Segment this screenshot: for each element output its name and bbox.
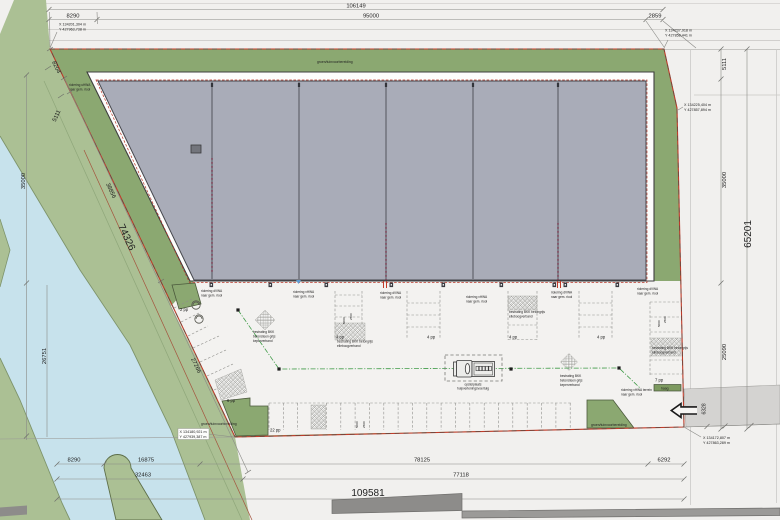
svg-text:riolering uHWA: riolering uHWA	[69, 83, 91, 87]
svg-text:groen/tuinvoorbereiding: groen/tuinvoorbereiding	[317, 60, 353, 64]
svg-text:Y 427863,289 m: Y 427863,289 m	[703, 441, 730, 445]
svg-text:betonsteen grijs: betonsteen grijs	[253, 334, 276, 338]
svg-text:6328: 6328	[702, 403, 708, 414]
svg-text:X 134225,404 m: X 134225,404 m	[684, 103, 711, 107]
svg-text:Y 427857,894 m: Y 427857,894 m	[684, 108, 711, 112]
svg-text:Y 427939,387 m: Y 427939,387 m	[180, 435, 207, 439]
svg-text:5000: 5000	[355, 421, 359, 428]
svg-text:naar gem. riool: naar gem. riool	[293, 294, 315, 298]
svg-text:bestrating BKK betongrijs: bestrating BKK betongrijs	[337, 340, 373, 344]
svg-text:35000: 35000	[722, 172, 728, 188]
svg-text:4 pp: 4 pp	[509, 335, 518, 340]
svg-text:hulpverleningsvoertuig: hulpverleningsvoertuig	[457, 387, 489, 391]
svg-text:32463: 32463	[135, 473, 151, 479]
svg-text:X 134237,918 m: X 134237,918 m	[665, 29, 692, 33]
svg-text:6 pp: 6 pp	[227, 398, 236, 403]
svg-text:riolering dVWA: riolering dVWA	[380, 291, 402, 295]
svg-text:5111: 5111	[722, 58, 728, 70]
svg-text:groen/tuinvoorbereiding: groen/tuinvoorbereiding	[591, 423, 627, 427]
svg-text:bestrating BKK: bestrating BKK	[560, 374, 582, 378]
svg-text:naar gem. riool: naar gem. riool	[551, 295, 573, 299]
svg-text:5000: 5000	[342, 317, 346, 324]
svg-text:8290: 8290	[68, 458, 81, 464]
svg-text:keperverband: keperverband	[253, 339, 273, 343]
svg-text:6292: 6292	[658, 458, 671, 464]
svg-text:8290: 8290	[67, 14, 80, 20]
svg-text:4 pp: 4 pp	[597, 335, 606, 340]
svg-text:26751: 26751	[42, 348, 48, 364]
svg-text:naar gem. riool: naar gem. riool	[637, 291, 659, 295]
svg-text:2500: 2500	[362, 421, 366, 428]
svg-text:elleboogverband: elleboogverband	[337, 344, 361, 348]
svg-text:keperverband: keperverband	[560, 383, 580, 387]
svg-text:2500: 2500	[349, 313, 353, 320]
svg-text:25090: 25090	[722, 344, 728, 360]
svg-text:naar gem. riool: naar gem. riool	[466, 299, 488, 303]
svg-text:Y 427963,738 m: Y 427963,738 m	[59, 28, 86, 32]
svg-text:X 134201,304 m: X 134201,304 m	[59, 23, 86, 27]
svg-text:35000: 35000	[21, 173, 27, 189]
svg-text:16875: 16875	[138, 458, 154, 464]
svg-text:78125: 78125	[414, 458, 430, 464]
svg-text:95000: 95000	[363, 14, 379, 20]
svg-text:groen/tuinvoorbereiding: groen/tuinvoorbereiding	[201, 422, 237, 426]
svg-text:bestrating BKK betongrijs: bestrating BKK betongrijs	[509, 310, 545, 314]
svg-text:22 pp: 22 pp	[270, 428, 281, 433]
svg-text:4 pp: 4 pp	[427, 335, 436, 340]
svg-text:riolering dVWA: riolering dVWA	[201, 289, 223, 293]
svg-text:naar gem. riool: naar gem. riool	[201, 293, 223, 297]
svg-text:77118: 77118	[453, 473, 469, 479]
svg-text:2859: 2859	[649, 14, 662, 20]
svg-text:naar gem. riool: naar gem. riool	[621, 392, 643, 396]
svg-text:X 134172,807 m: X 134172,807 m	[703, 436, 730, 440]
svg-text:haag: haag	[661, 387, 669, 391]
svg-text:betonsteen grijs: betonsteen grijs	[560, 378, 583, 382]
svg-text:riolering dVWA: riolering dVWA	[637, 287, 659, 291]
svg-text:riolering vHWA terrein: riolering vHWA terrein	[621, 388, 652, 392]
svg-text:106149: 106149	[346, 4, 365, 10]
svg-text:riolering vHWA: riolering vHWA	[293, 290, 315, 294]
svg-text:65201: 65201	[743, 220, 754, 248]
svg-text:2500: 2500	[663, 316, 667, 323]
svg-text:bestrating BKK betongrijs: bestrating BKK betongrijs	[652, 346, 688, 350]
svg-text:riolering vHWA: riolering vHWA	[466, 295, 488, 299]
svg-text:Y 427858,441 m: Y 427858,441 m	[665, 34, 692, 38]
svg-text:naar gem. riool: naar gem. riool	[380, 295, 402, 299]
svg-text:7 pp: 7 pp	[655, 378, 664, 383]
svg-text:bestrating BKK: bestrating BKK	[253, 330, 275, 334]
svg-text:2 pp: 2 pp	[180, 307, 189, 312]
svg-text:5000: 5000	[657, 320, 661, 327]
svg-text:riolering dVWA: riolering dVWA	[551, 291, 573, 295]
svg-text:X 134180,921 m: X 134180,921 m	[180, 430, 207, 434]
svg-text:elleboogverband: elleboogverband	[652, 350, 676, 354]
svg-text:opstelplaats: opstelplaats	[464, 382, 481, 386]
svg-text:elleboogverband: elleboogverband	[509, 314, 533, 318]
